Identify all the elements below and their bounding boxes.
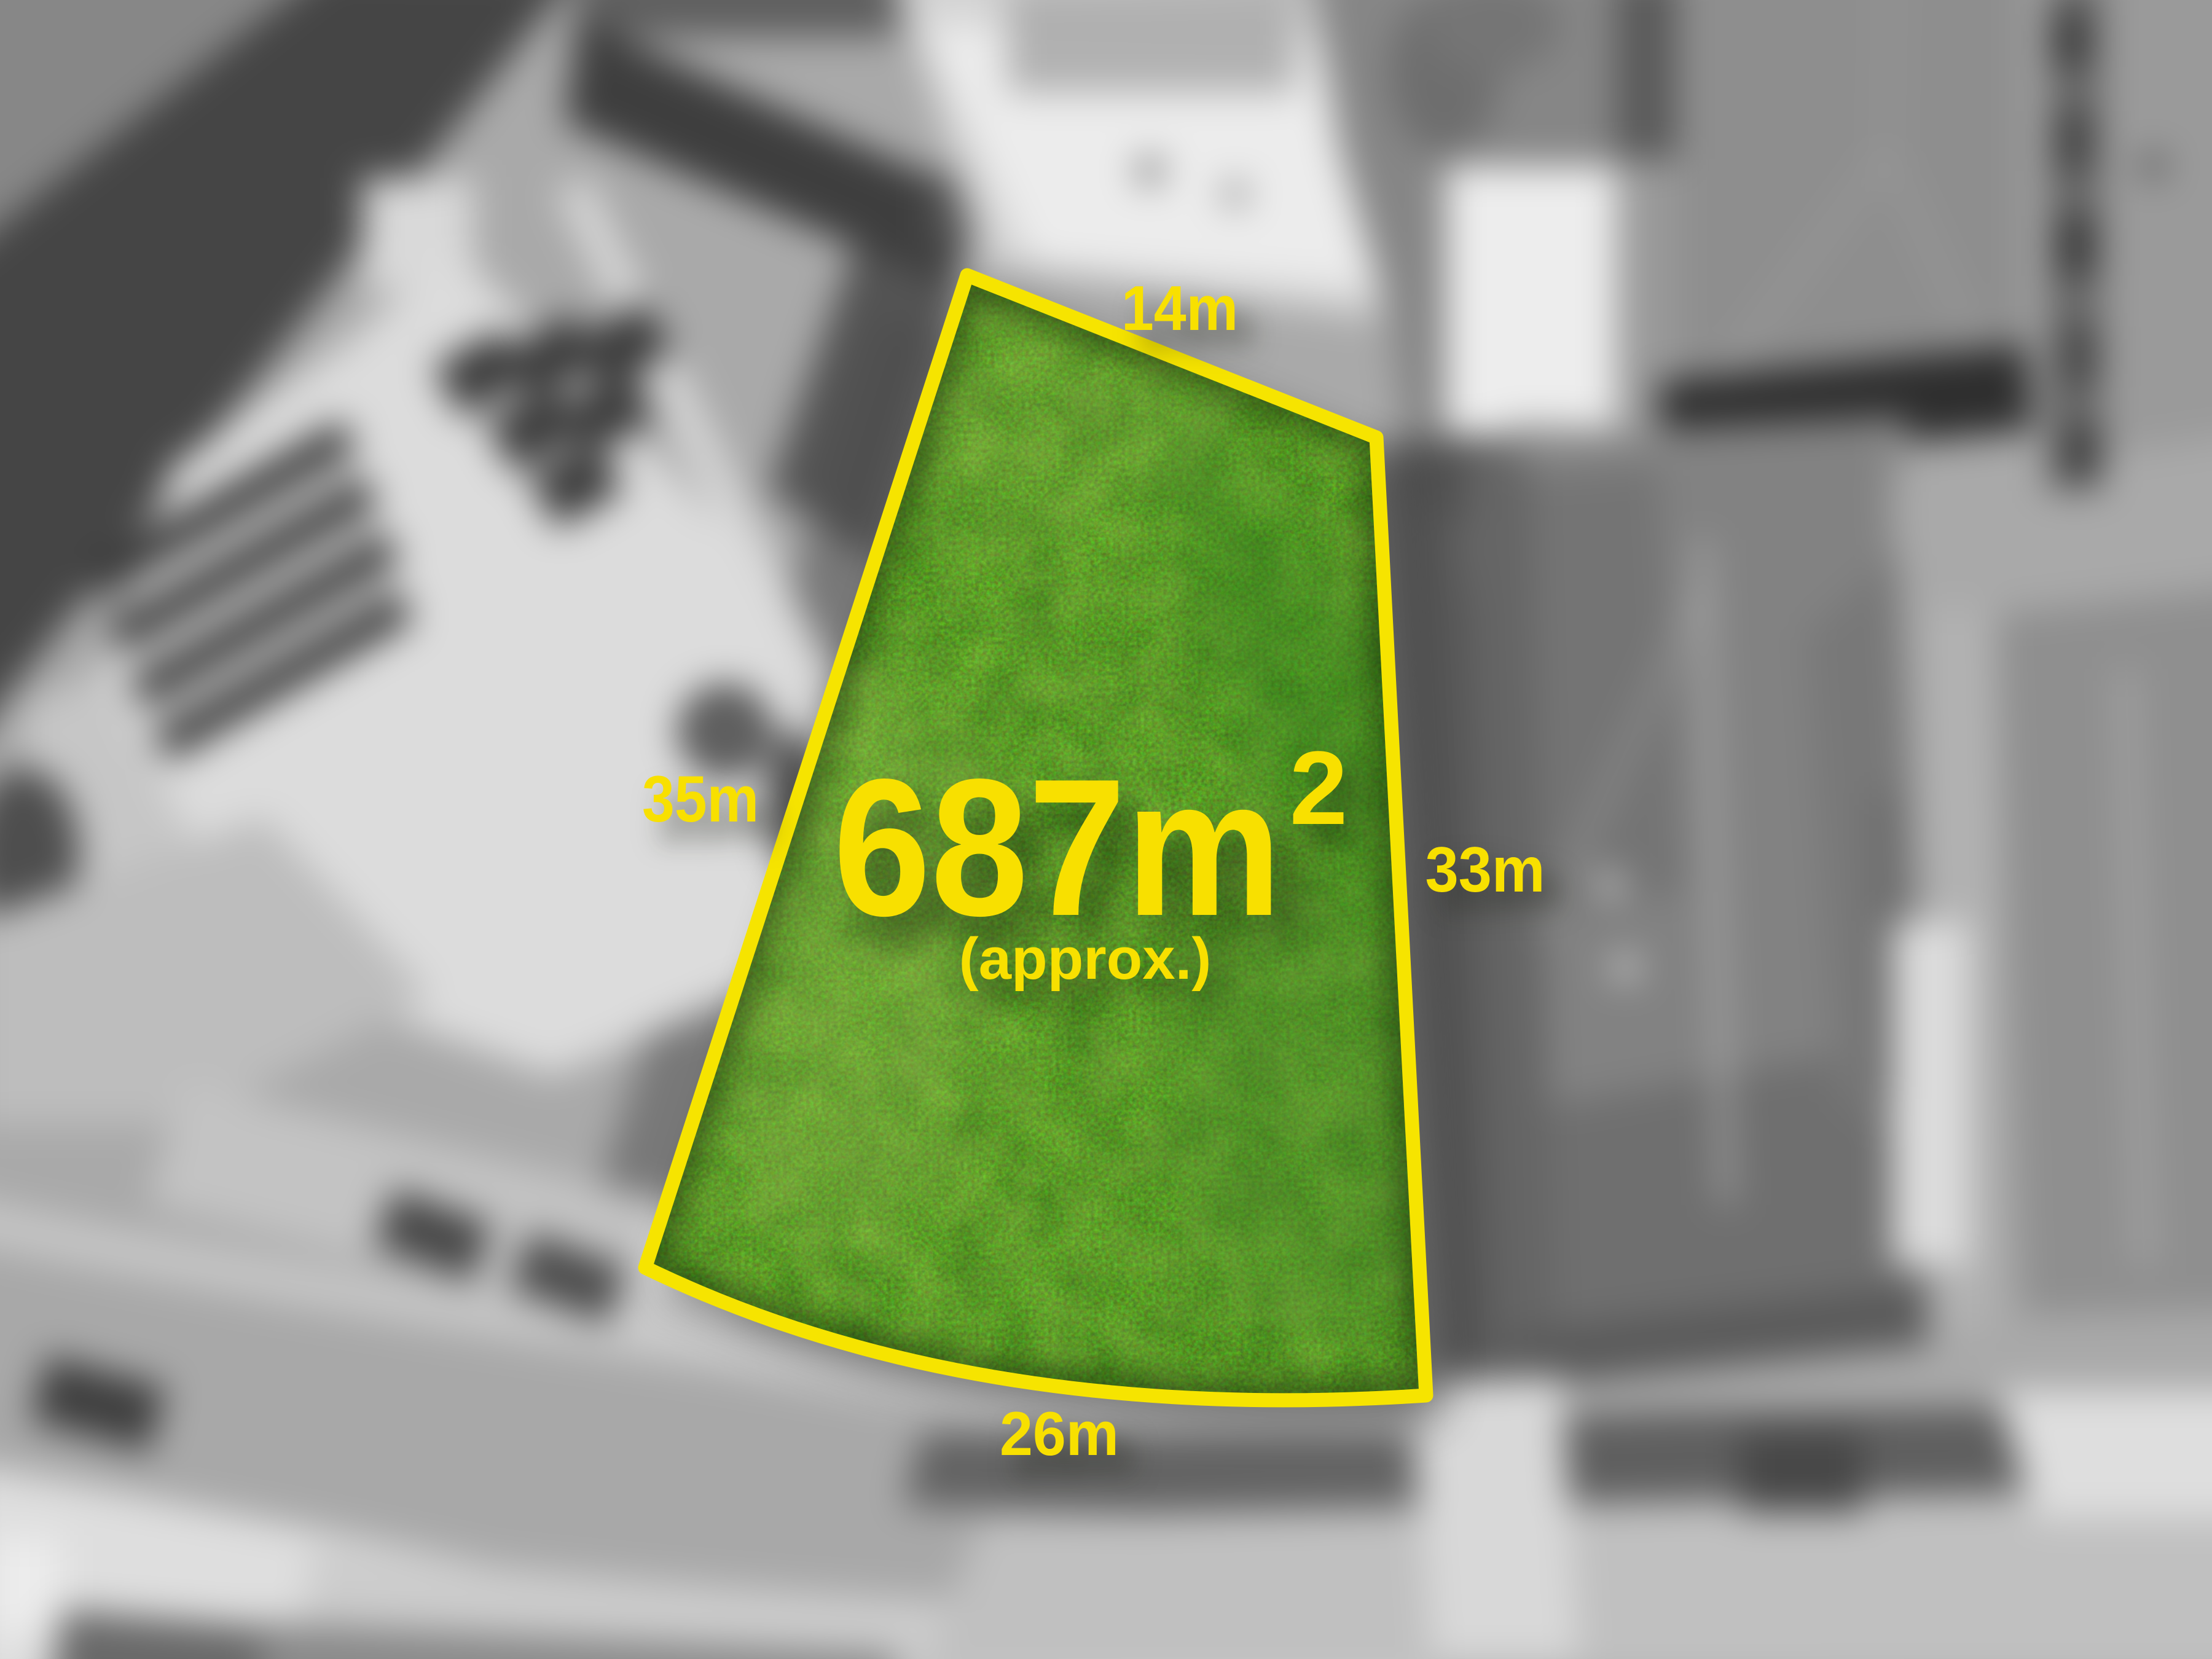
svg-text:35m: 35m (642, 762, 759, 836)
svg-text:687m: 687m (833, 739, 1282, 957)
svg-text:14m: 14m (1121, 273, 1238, 343)
svg-text:33m: 33m (1426, 834, 1545, 906)
svg-text:2: 2 (1290, 730, 1348, 847)
svg-text:26m: 26m (1000, 1400, 1119, 1469)
svg-text:(approx.): (approx.) (959, 926, 1212, 992)
